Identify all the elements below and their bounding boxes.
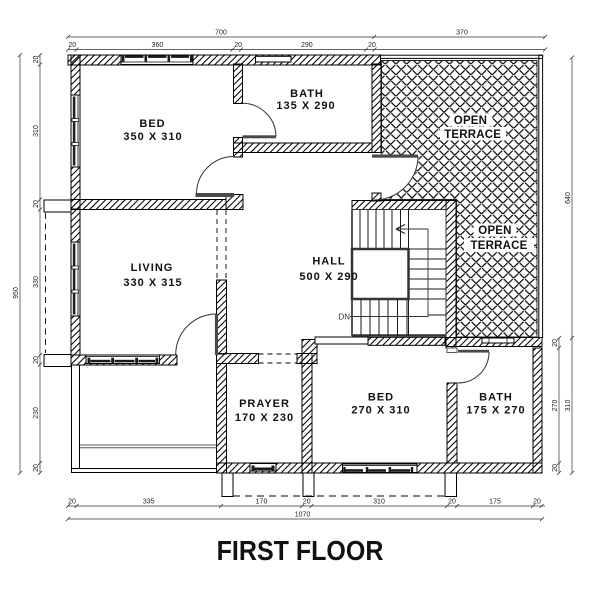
svg-text:20: 20 <box>552 339 559 347</box>
svg-text:170 X 230: 170 X 230 <box>235 412 294 424</box>
svg-text:310: 310 <box>565 400 572 412</box>
svg-text:20: 20 <box>33 200 40 208</box>
svg-text:175 X 270: 175 X 270 <box>466 405 525 417</box>
svg-text:950: 950 <box>13 287 20 299</box>
svg-text:135 X 290: 135 X 290 <box>276 100 335 112</box>
svg-text:640: 640 <box>565 192 572 204</box>
svg-text:20: 20 <box>552 464 559 472</box>
svg-text:20: 20 <box>33 356 40 364</box>
svg-text:PRAYER: PRAYER <box>239 398 290 410</box>
svg-text:20: 20 <box>68 499 76 506</box>
svg-text:20: 20 <box>533 499 541 506</box>
svg-text:20: 20 <box>303 499 311 506</box>
svg-text:350 X 310: 350 X 310 <box>123 131 182 143</box>
svg-text:20: 20 <box>33 464 40 472</box>
svg-text:20: 20 <box>368 42 376 49</box>
svg-text:310: 310 <box>373 499 385 506</box>
svg-text:20: 20 <box>234 42 242 49</box>
svg-text:270 X 310: 270 X 310 <box>351 405 410 417</box>
svg-text:370: 370 <box>456 30 468 37</box>
svg-text:20: 20 <box>33 56 40 64</box>
svg-text:20: 20 <box>448 499 456 506</box>
svg-text:230: 230 <box>33 407 40 419</box>
svg-text:BED: BED <box>139 118 165 130</box>
svg-text:175: 175 <box>489 499 501 506</box>
svg-text:170: 170 <box>256 499 268 506</box>
svg-text:330 X 315: 330 X 315 <box>123 277 182 289</box>
svg-text:270: 270 <box>552 400 559 412</box>
svg-text:BED: BED <box>368 392 394 404</box>
svg-text:20: 20 <box>68 42 76 49</box>
svg-text:LIVING: LIVING <box>131 262 174 274</box>
svg-text:335: 335 <box>143 499 155 506</box>
svg-text:TERRACE: TERRACE <box>471 240 528 252</box>
svg-text:500 X 290: 500 X 290 <box>299 271 358 283</box>
svg-text:330: 330 <box>33 276 40 288</box>
svg-text:1070: 1070 <box>295 512 311 519</box>
svg-text:TERRACE: TERRACE <box>444 129 501 141</box>
svg-text:OPEN: OPEN <box>454 115 487 127</box>
svg-text:700: 700 <box>215 30 227 37</box>
svg-text:290: 290 <box>301 42 313 49</box>
svg-text:310: 310 <box>33 125 40 137</box>
svg-text:FIRST FLOOR: FIRST FLOOR <box>217 535 384 566</box>
svg-text:OPEN: OPEN <box>478 225 511 237</box>
svg-text:BATH: BATH <box>290 88 324 100</box>
svg-text:BATH: BATH <box>479 392 513 404</box>
svg-text:HALL: HALL <box>312 256 345 268</box>
svg-text:360: 360 <box>152 42 164 49</box>
svg-text:DN: DN <box>338 313 350 322</box>
